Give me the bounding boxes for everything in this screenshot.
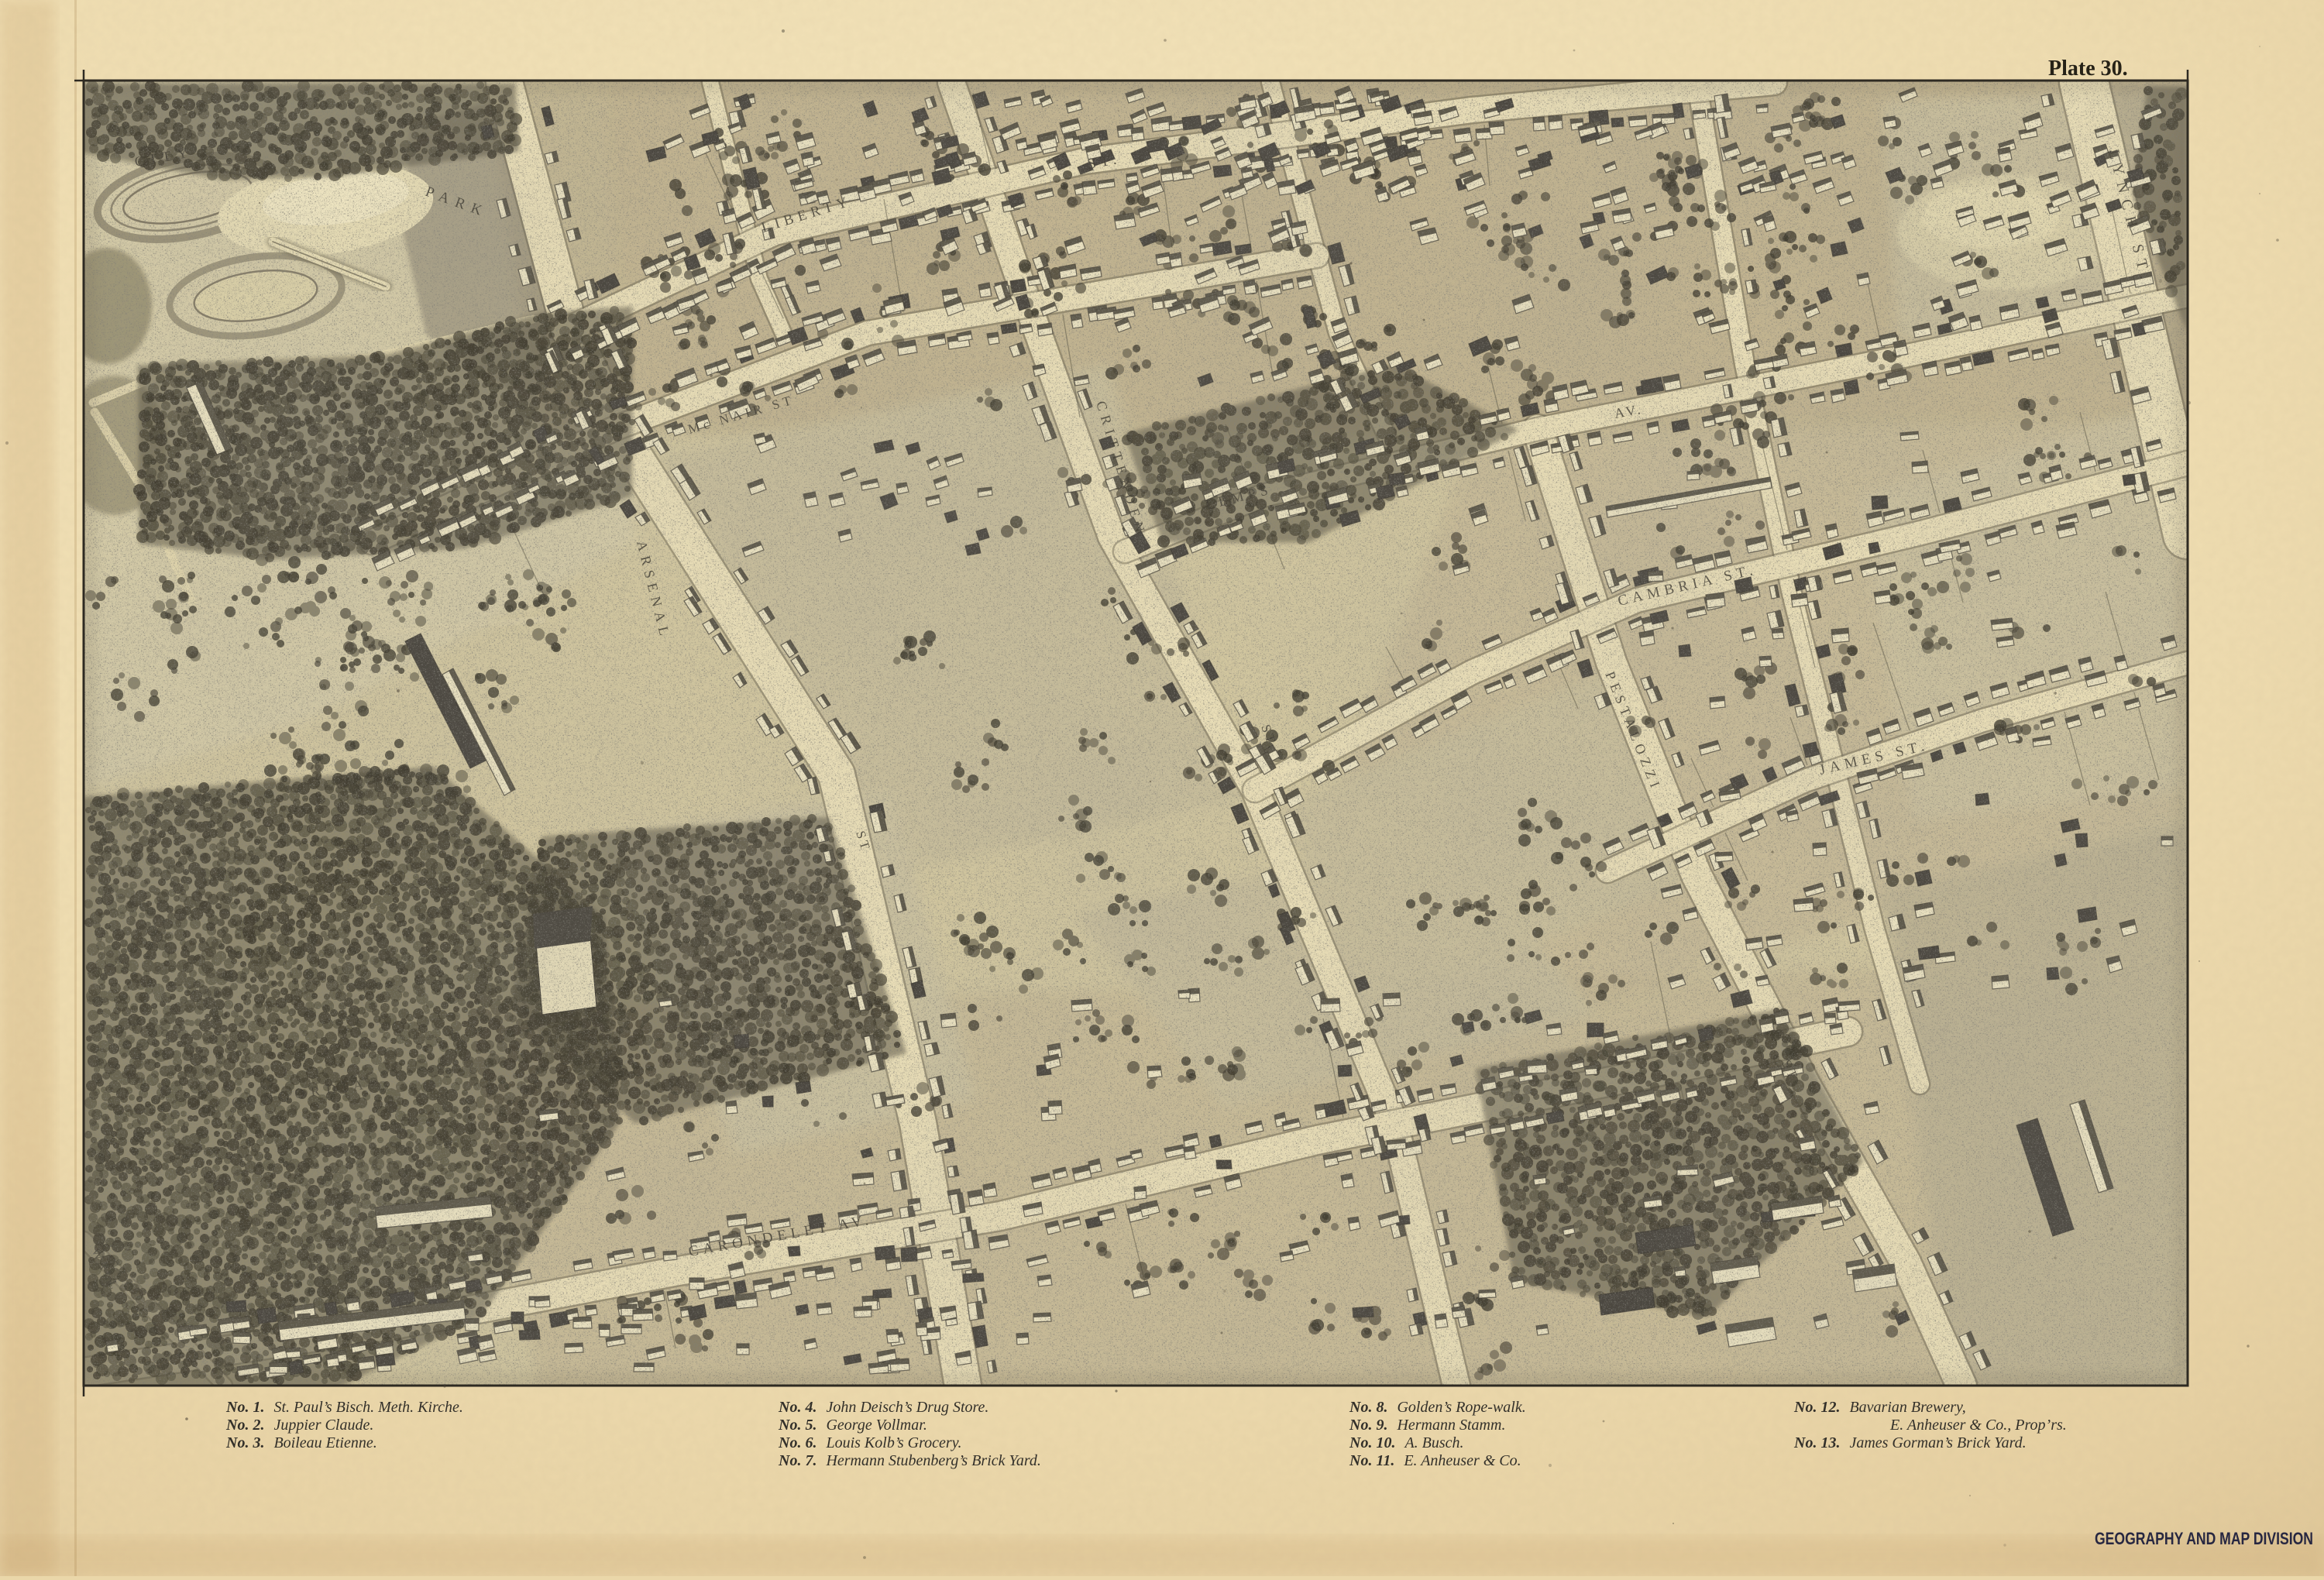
svg-text:No. 8.Golden’s Rope-walk.: No. 8.Golden’s Rope-walk. — [1349, 1399, 1526, 1416]
svg-text:No. 13.James Gorman’s Brick Ya: No. 13.James Gorman’s Brick Yard. — [1793, 1434, 2027, 1451]
svg-text:No. 6.Louis Kolb’s Grocery.: No. 6.Louis Kolb’s Grocery. — [778, 1434, 961, 1451]
svg-text:E. Anheuser & Co., Prop’rs.: E. Anheuser & Co., Prop’rs. — [1889, 1417, 2067, 1434]
svg-text:No. 3.Boileau Etienne.: No. 3.Boileau Etienne. — [225, 1434, 377, 1451]
svg-text:No. 1.St. Paul’s Bisch. Meth.: No. 1.St. Paul’s Bisch. Meth. Kirche. — [225, 1399, 463, 1416]
svg-text:No. 12.Bavarian Brewery,: No. 12.Bavarian Brewery, — [1793, 1399, 1966, 1416]
svg-text:No. 9.Hermann Stamm.: No. 9.Hermann Stamm. — [1349, 1417, 1505, 1434]
svg-text:No. 5.George Vollmar.: No. 5.George Vollmar. — [778, 1417, 927, 1434]
svg-text:GEOGRAPHY AND MAP DIVISION: GEOGRAPHY AND MAP DIVISION — [2095, 1529, 2313, 1548]
svg-text:No. 10.A. Busch.: No. 10.A. Busch. — [1349, 1434, 1464, 1451]
svg-text:No. 2.Juppier Claude.: No. 2.Juppier Claude. — [225, 1417, 373, 1434]
svg-text:No. 11.E. Anheuser & Co.: No. 11.E. Anheuser & Co. — [1349, 1452, 1521, 1469]
svg-text:Plate 30.: Plate 30. — [2048, 57, 2128, 81]
svg-text:No. 4.John Deisch’s Drug Store: No. 4.John Deisch’s Drug Store. — [778, 1399, 988, 1416]
